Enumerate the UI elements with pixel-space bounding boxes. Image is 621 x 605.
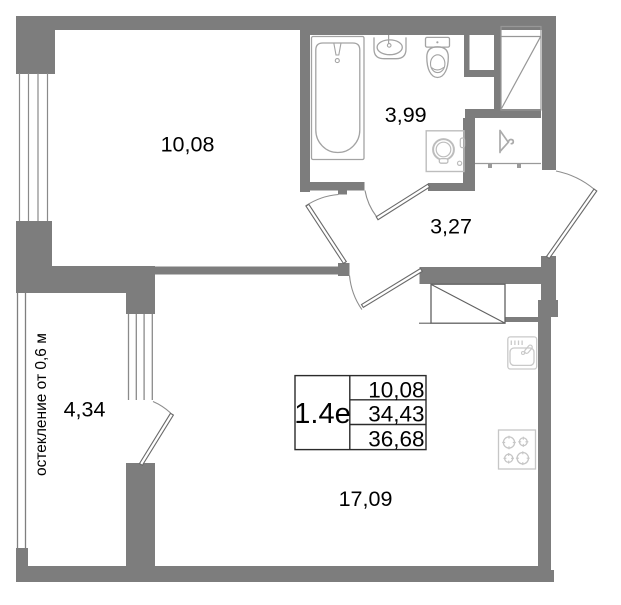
svg-text:10,08: 10,08	[368, 378, 424, 403]
svg-text:4,34: 4,34	[64, 397, 106, 421]
svg-text:3,99: 3,99	[385, 103, 427, 127]
svg-text:3,27: 3,27	[430, 215, 472, 239]
svg-text:остекление от 0,6 м: остекление от 0,6 м	[33, 333, 50, 476]
svg-text:36,68: 36,68	[368, 427, 424, 452]
svg-text:10,08: 10,08	[161, 133, 215, 157]
svg-text:34,43: 34,43	[368, 402, 424, 427]
svg-text:17,09: 17,09	[339, 487, 393, 511]
svg-text:1.4е: 1.4е	[294, 398, 350, 430]
